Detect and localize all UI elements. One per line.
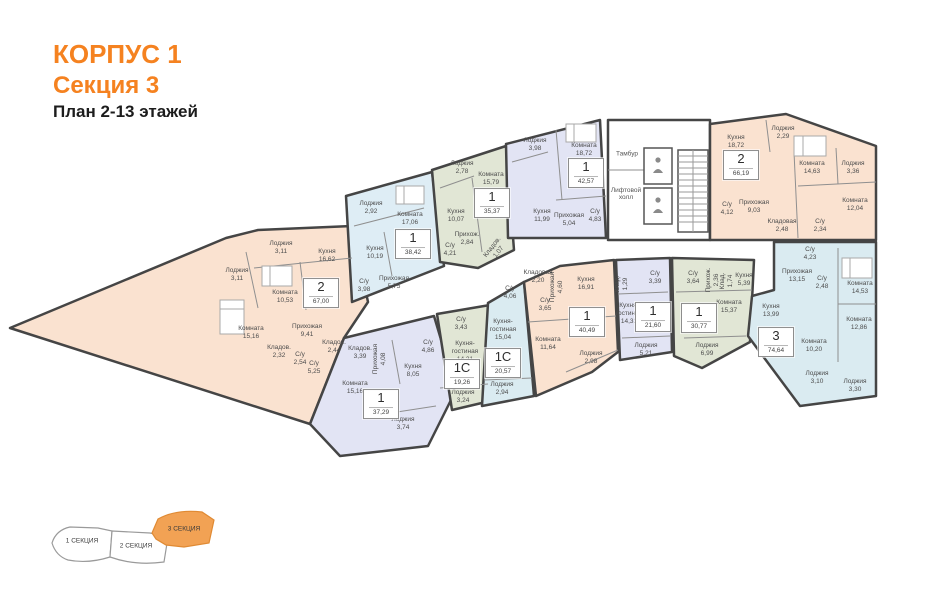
apartment-area: 20,57 bbox=[491, 366, 515, 375]
apartment-badge: 1С19,26 bbox=[444, 359, 480, 389]
apartment-badge: 140,49 bbox=[569, 307, 605, 337]
apartment-type: 1 bbox=[369, 391, 393, 406]
floors-subtitle: План 2-13 этажей bbox=[53, 101, 198, 124]
apartment-badge: 138,42 bbox=[395, 229, 431, 259]
apartment-area: 67,00 bbox=[309, 296, 333, 305]
section-title: Секция 3 bbox=[53, 71, 198, 101]
apartment-type: 1 bbox=[574, 160, 598, 175]
floorplan-stage: КОРПУС 1 Секция 3 План 2-13 этажей Тамбу… bbox=[0, 0, 941, 600]
apartment-badge: 374,64 bbox=[758, 327, 794, 357]
apartment-badge: 142,57 bbox=[568, 158, 604, 188]
inset-label-section-1: 1 СЕКЦИЯ bbox=[66, 538, 98, 545]
apartment-badge: 121,60 bbox=[635, 302, 671, 332]
apartment-badge: 135,37 bbox=[474, 188, 510, 218]
apartment-badge: 266,19 bbox=[723, 150, 759, 180]
apartment-type: 1 bbox=[641, 304, 665, 319]
apartment-area: 66,19 bbox=[729, 168, 753, 177]
apartment-type: 1 bbox=[401, 231, 425, 246]
apartment-area: 42,57 bbox=[574, 176, 598, 185]
inset-label-section-3: 3 СЕКЦИЯ bbox=[168, 526, 200, 533]
apartment-type: 1С bbox=[491, 350, 515, 365]
apartment-region-67-00[interactable] bbox=[10, 226, 368, 424]
building-title: КОРПУС 1 bbox=[53, 38, 198, 71]
apartment-type: 3 bbox=[764, 329, 788, 344]
apartment-area: 40,49 bbox=[575, 325, 599, 334]
elevator-hall-label: Лифтовой холл bbox=[608, 187, 644, 201]
inset-label-section-2: 2 СЕКЦИЯ bbox=[120, 543, 152, 550]
apartment-type: 2 bbox=[729, 152, 753, 167]
apartment-type: 2 bbox=[309, 280, 333, 295]
apartment-area: 37,29 bbox=[369, 407, 393, 416]
apartment-type: 1 bbox=[480, 190, 504, 205]
apartment-badge: 1С20,57 bbox=[485, 348, 521, 378]
apartment-area: 74,64 bbox=[764, 345, 788, 354]
apartment-type: 1 bbox=[687, 305, 711, 320]
plan-header: КОРПУС 1 Секция 3 План 2-13 этажей bbox=[53, 38, 198, 123]
apartment-badge: 130,77 bbox=[681, 303, 717, 333]
staircase bbox=[678, 150, 708, 232]
apartment-area: 19,26 bbox=[450, 377, 474, 386]
apartment-area: 21,60 bbox=[641, 320, 665, 329]
apartment-area: 30,77 bbox=[687, 321, 711, 330]
apartment-area: 38,42 bbox=[401, 247, 425, 256]
apartment-area: 35,37 bbox=[480, 206, 504, 215]
apartment-type: 1С bbox=[450, 361, 474, 376]
apartment-type: 1 bbox=[575, 309, 599, 324]
tambour-label: Тамбур bbox=[605, 151, 649, 158]
apartment-badge: 267,00 bbox=[303, 278, 339, 308]
apartment-badge: 137,29 bbox=[363, 389, 399, 419]
